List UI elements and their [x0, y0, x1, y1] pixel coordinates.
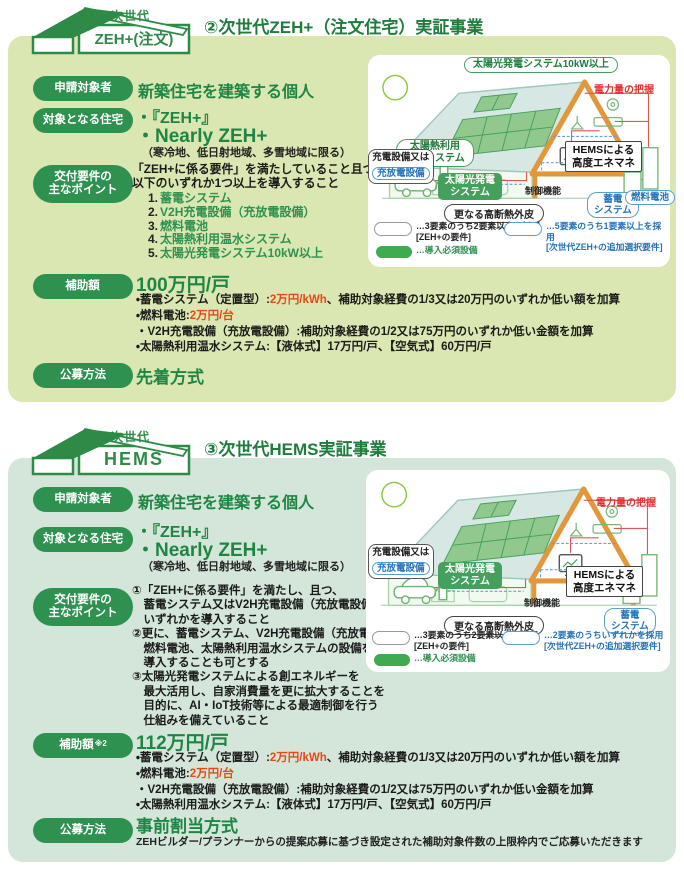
requirement-item: 5.太陽光発電システム10kW以上	[148, 247, 323, 261]
subsidy-line: ・太陽熱利用温水システム:【液体式】17万円/戸、【空気式】60万円/戸	[136, 340, 620, 356]
legend-blue-oval-icon	[504, 222, 542, 236]
legend-green-oval-icon	[376, 246, 412, 258]
legend-mandatory: …導入必須設備	[374, 653, 476, 666]
label-subsidy: 補助額	[33, 274, 133, 299]
subsidy-line: ・蓄電システム（定置型）:2万円/kWh、補助対象経費の1/3又は20万円のいず…	[136, 751, 620, 767]
label-housing: 対象となる住宅	[33, 108, 133, 133]
bubble-pv10kw: 太陽光発電システム10kW以上	[464, 57, 618, 73]
legend-mandatory: …導入必須設備	[376, 245, 478, 258]
legend-white-oval-icon	[372, 631, 410, 645]
label-method: 公募方法	[33, 818, 133, 843]
tag-pv-system: 太陽光発電 システム	[438, 562, 502, 589]
bubble-charge-equipment: 充電設備又は 充放電設備	[368, 544, 434, 579]
legend-blue-oval-icon	[502, 631, 540, 645]
hems-box: HEMSによる 高度エネマネ	[566, 566, 643, 597]
applicant-value: 新築住宅を建築する個人	[138, 78, 314, 102]
section2-heading: ③次世代HEMS実証事業	[204, 435, 387, 460]
label-applicant: 申請対象者	[33, 487, 133, 512]
legend-green-oval-icon	[374, 654, 410, 666]
applicant-value: 新築住宅を建築する個人	[138, 489, 314, 513]
method-note: ZEHビルダー/プランナーからの提案応募に基づき設定された補助対象件数の上限枠内…	[136, 834, 643, 849]
diagram-zeh-plus: 太陽光発電システム10kW以上 電力量の把握 太陽熱利用 温水システム 充電設備…	[368, 55, 670, 267]
hems-box: HEMSによる 高度エネマネ	[565, 141, 642, 172]
diagram-hems: 電力量の把握 充電設備又は 充放電設備 太陽光発電 システム HEMSによる 高…	[366, 470, 670, 672]
logo-text-line1: 次世代	[111, 428, 150, 445]
method-value: 先着方式	[136, 363, 204, 388]
legend-white-oval-icon	[374, 222, 412, 236]
logo-text-line1: 次世代	[111, 7, 150, 24]
housing-note: （寒冷地、低日射地域、多雪地域に限る）	[142, 558, 351, 574]
label-requirements: 交付要件の 主なポイント	[33, 588, 133, 626]
bubble-fuel-cell: 燃料電池	[625, 190, 675, 205]
pamphlet-page: 次世代 ZEH+(注文) ②次世代ZEH+（注文住宅）実証事業 申請対象者 新築…	[0, 0, 684, 873]
label-requirements: 交付要件の 主なポイント	[33, 165, 133, 203]
subsidy-details: ・蓄電システム（定置型）:2万円/kWh、補助対象経費の1/3又は20万円のいず…	[136, 293, 620, 356]
requirement-item: 1.蓄電システム	[148, 192, 323, 206]
requirements-list: 1.蓄電システム 2.V2H充電設備（充放電設備） 3.燃料電池 4.太陽熱利用…	[148, 192, 323, 261]
subsidy-line: ・蓄電システム（定置型）:2万円/kWh、補助対象経費の1/3又は20万円のいず…	[136, 293, 620, 309]
sun-icon	[382, 482, 406, 506]
power-grasp-label: 電力量の把握	[596, 494, 656, 509]
control-function-label: 制御機能	[524, 596, 560, 609]
section1-heading: ②次世代ZEH+（注文住宅）実証事業	[204, 13, 483, 38]
subsidy-line: ・燃料電池:2万円/台	[136, 767, 620, 783]
legend-additional-requirement: …5要素のうち1要素以上を採用 [次世代ZEH+の追加選択要件]	[504, 221, 670, 253]
legend-additional-requirement: …2要素のうちいずれかを採用 [次世代ZEH+の追加選択要件]	[502, 630, 663, 651]
subsidy-line: ・燃料電池:2万円/台	[136, 309, 620, 325]
subsidy-line: ・V2H充電設備（充放電設備）:補助対象経費の1/2又は75万円のいずれか低い金…	[136, 325, 620, 341]
label-subsidy: 補助額※2	[33, 733, 133, 758]
logo-hems: 次世代 HEMS	[25, 424, 195, 478]
power-grasp-label: 電力量の把握	[594, 81, 654, 96]
logo-zeh-plus: 次世代 ZEH+(注文)	[25, 3, 195, 57]
control-function-label: 制御機能	[525, 184, 561, 197]
logo-text-line2: ZEH+(注文)	[81, 28, 187, 49]
logo-text-line2: HEMS	[81, 449, 187, 470]
requirement-item: 2.V2H充電設備（充放電設備）	[148, 206, 323, 220]
housing-note: （寒冷地、低日射地域、多雪地域に限る）	[142, 144, 351, 160]
label-housing: 対象となる住宅	[33, 527, 133, 552]
sun-icon	[383, 75, 407, 99]
label-applicant: 申請対象者	[33, 76, 133, 101]
bubble-charge-equipment: 充電設備又は 充放電設備	[368, 149, 434, 184]
label-method: 公募方法	[33, 363, 133, 388]
subsidy-details: ・蓄電システム（定置型）:2万円/kWh、補助対象経費の1/3又は20万円のいず…	[136, 751, 620, 814]
requirements-intro: 「ZEH+に係る要件」を満たしていること且つ、 以下のいずれか1つ以上を導入する…	[132, 163, 386, 190]
subsidy-line: ・V2H充電設備（充放電設備）:補助対象経費の1/2又は75万円のいずれか低い金…	[136, 783, 620, 799]
tag-pv-system: 太陽光発電 システム	[438, 173, 502, 200]
